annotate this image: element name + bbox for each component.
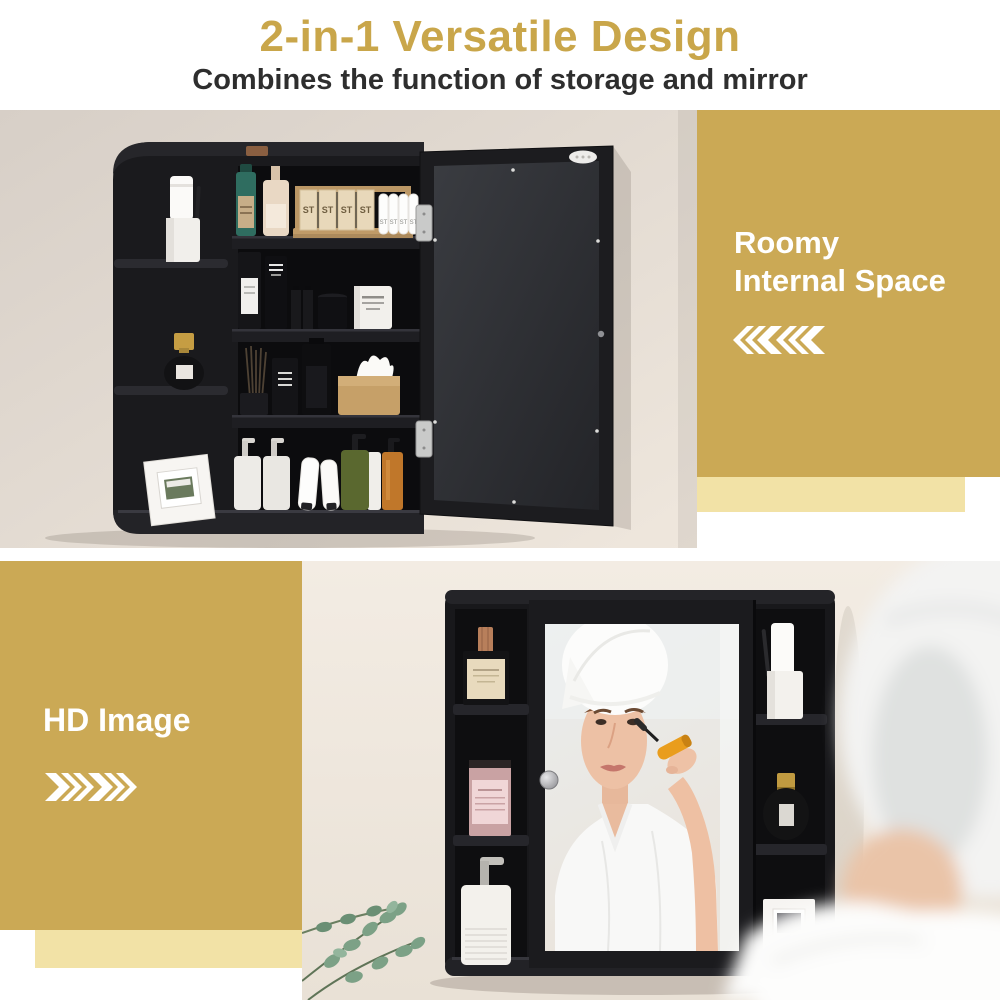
triple-chevrons-right-icon — [45, 773, 137, 801]
svg-text:ST: ST — [303, 205, 315, 215]
open-mirror-door — [416, 146, 631, 530]
picture-frame — [144, 454, 215, 525]
svg-text:ST: ST — [390, 220, 398, 226]
svg-text:ST: ST — [322, 205, 334, 215]
soap-dispenser — [263, 456, 290, 510]
feature-label-hd: HD Image — [43, 701, 191, 739]
svg-text:ST: ST — [400, 220, 408, 226]
feature-label-roomy-line2: Internal Space — [734, 262, 946, 300]
st-white-tubes: ST ST ST ST — [379, 194, 418, 234]
svg-text:ST: ST — [380, 220, 388, 226]
feature-panel-hd — [0, 561, 302, 930]
mirror-cabinet-illustration — [302, 561, 1000, 1000]
soap-dispenser — [234, 456, 261, 510]
page-title: 2-in-1 Versatile Design — [0, 12, 1000, 62]
white-tube — [170, 176, 193, 220]
page-subtitle: Combines the function of storage and mir… — [0, 62, 1000, 98]
page-root: 2-in-1 Versatile Design Combines the fun… — [0, 0, 1000, 1000]
mirror-cabinet-photo — [302, 561, 1000, 1000]
hinge — [416, 421, 432, 457]
open-cabinet-photo: ST ST ST ST ST ST ST ST — [0, 110, 697, 548]
svg-text:ST: ST — [341, 205, 353, 215]
hinge-bracket — [246, 146, 268, 156]
amber-bottle — [382, 452, 403, 510]
olive-bottle — [341, 450, 369, 510]
open-cabinet-illustration: ST ST ST ST ST ST ST ST — [0, 110, 697, 548]
feature-label-roomy-line1: Roomy — [734, 224, 946, 262]
hinge — [416, 205, 432, 241]
feature-panel-hd-light-strip — [35, 930, 302, 968]
door-knob — [540, 771, 558, 789]
triple-chevrons-left-icon — [733, 326, 825, 354]
feature-label-roomy: Roomy Internal Space — [734, 224, 946, 300]
white-tube — [771, 623, 794, 675]
side-shelf — [114, 386, 228, 395]
feature-panel-roomy-light-strip — [697, 477, 965, 512]
svg-text:ST: ST — [360, 205, 372, 215]
